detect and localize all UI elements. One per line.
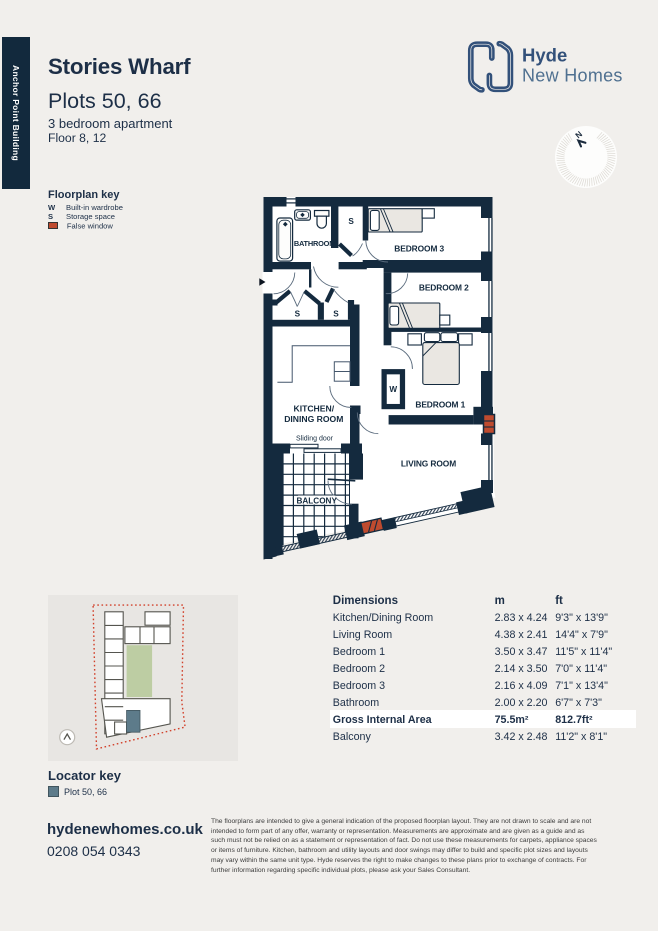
- svg-text:BEDROOM 1: BEDROOM 1: [415, 400, 465, 410]
- svg-text:BEDROOM 2: BEDROOM 2: [419, 283, 469, 293]
- svg-text:LIVING ROOM: LIVING ROOM: [401, 459, 456, 469]
- svg-text:KITCHEN/: KITCHEN/: [294, 404, 335, 414]
- svg-text:DINING ROOM: DINING ROOM: [284, 414, 343, 424]
- svg-text:W: W: [389, 385, 397, 394]
- svg-text:Hyde: Hyde: [522, 45, 567, 66]
- svg-text:S: S: [333, 310, 339, 319]
- svg-text:BALCONY: BALCONY: [296, 497, 337, 506]
- svg-text:BEDROOM 3: BEDROOM 3: [394, 244, 444, 254]
- svg-text:Sliding door: Sliding door: [296, 435, 334, 442]
- svg-text:S: S: [295, 310, 301, 319]
- svg-text:BATHROOM: BATHROOM: [294, 239, 335, 248]
- svg-text:S: S: [348, 217, 354, 226]
- svg-text:New Homes: New Homes: [522, 66, 623, 86]
